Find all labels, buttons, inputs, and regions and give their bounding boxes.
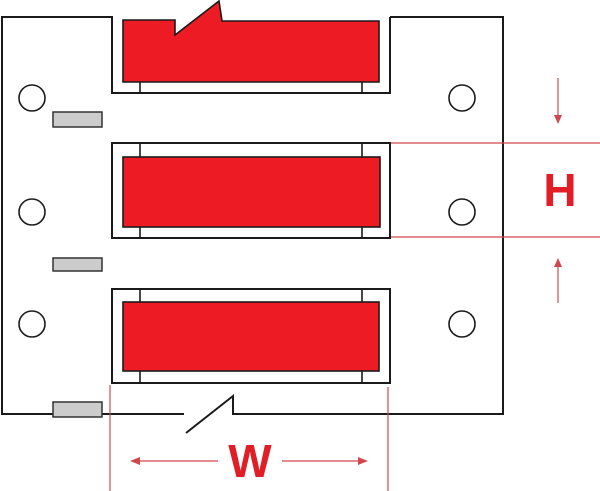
feed-hole [19,85,45,111]
h-arrow-down-head-icon [554,115,562,124]
product-diagram: H W [0,0,600,491]
width-dimension-label: W [228,435,272,487]
w-arrow-left-head-icon [130,457,140,465]
w-arrow-right-head-icon [358,457,368,465]
registration-notches [53,112,102,417]
feed-hole [449,311,475,337]
feed-hole [19,199,45,225]
sleeve-2-red-label [123,157,380,227]
registration-notch [53,258,102,271]
sleeve-3-red-label [123,302,379,371]
feed-hole [449,85,475,111]
height-dimension: H [391,78,600,303]
marker-sleeve-3 [112,289,390,383]
sleeve-1-end-marks [140,82,362,93]
sleeve-1-red-label-torn [123,1,379,82]
registration-notch [53,112,102,127]
diagram-canvas: H W [0,0,600,491]
feed-hole [449,199,475,225]
registration-notch [53,402,102,417]
width-dimension: W [110,385,388,491]
height-dimension-label: H [543,164,576,216]
marker-sleeve-1 [112,1,390,93]
marker-sleeve-2 [112,143,390,238]
feed-hole [19,311,45,337]
h-arrow-up-head-icon [554,258,562,267]
